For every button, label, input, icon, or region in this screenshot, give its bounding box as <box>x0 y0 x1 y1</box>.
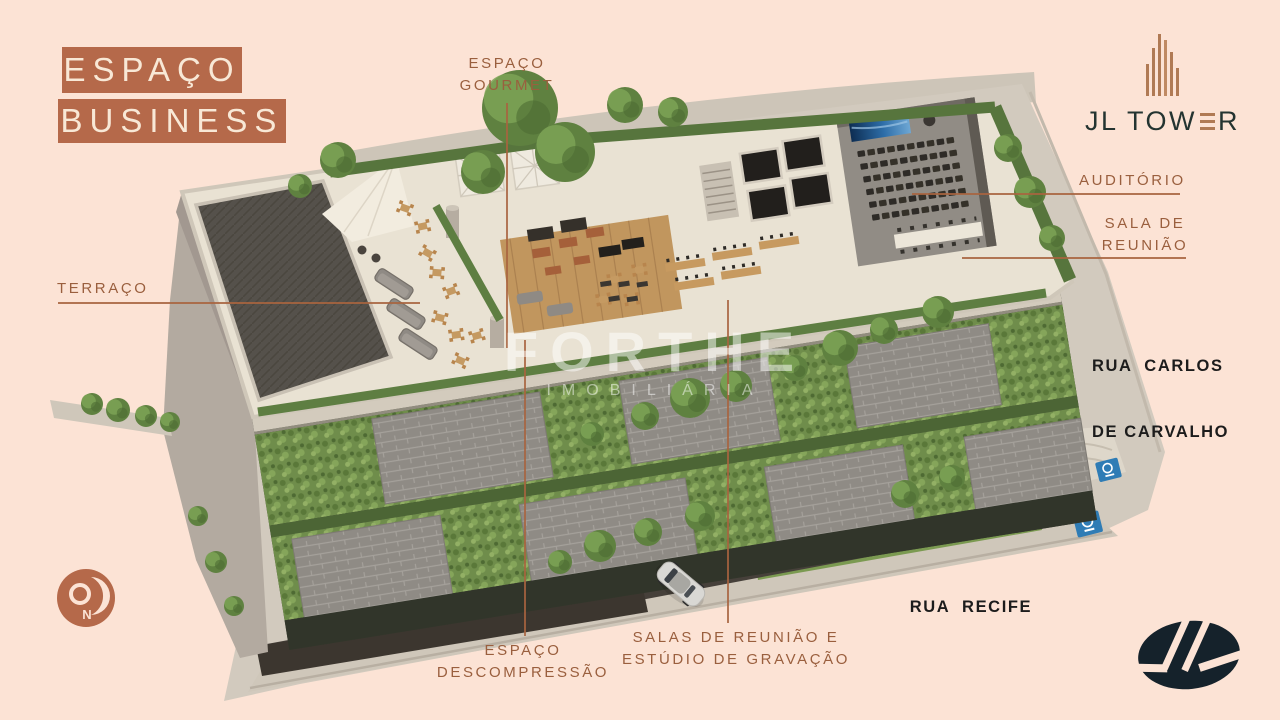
title-line-2: BUSINESS <box>61 102 284 140</box>
label-espaco-descompressao: ESPAÇO DESCOMPRESSÃO <box>432 640 614 684</box>
compass-north-letter: N <box>82 607 91 622</box>
brand-name: JL TOWR <box>1085 106 1240 137</box>
title-box-espaco: ESPAÇO <box>62 47 242 93</box>
jl-monogram-icon <box>1136 616 1242 694</box>
title-line-1: ESPAÇO <box>63 51 240 89</box>
title-box-business: BUSINESS <box>58 99 286 143</box>
brand-name-suffix: R <box>1218 106 1240 137</box>
watermark-brand: FORTHE <box>495 324 815 380</box>
tower-bars-icon <box>1146 32 1179 96</box>
label-auditorio: AUDITÓRIO <box>1079 170 1186 192</box>
watermark: FORTHE IMOBILIÁRIA <box>495 324 815 400</box>
jl-tower-logo: JL TOWR <box>1085 32 1240 137</box>
marketing-image: FORTHE IMOBILIÁRIA ESPAÇO BUSINESS JL TO… <box>0 0 1280 720</box>
brand-name-prefix: JL TOW <box>1085 106 1197 137</box>
label-salas-estudio: SALAS DE REUNIÃO E ESTÚDIO DE GRAVAÇÃO <box>612 627 860 671</box>
label-espaco-gourmet: ESPAÇO GOURMET <box>420 53 594 97</box>
brand-letter-e-icon <box>1200 113 1215 131</box>
studio-room <box>747 185 789 220</box>
street-name-rua-recife: RUA RECIFE <box>885 574 1032 640</box>
studio-room <box>790 173 832 208</box>
studio-room <box>740 148 782 183</box>
studio-room <box>782 136 824 171</box>
north-compass-icon: N <box>56 568 116 628</box>
label-sala-reuniao: SALA DE REUNIÃO <box>1095 213 1195 257</box>
watermark-subtitle: IMOBILIÁRIA <box>495 382 815 400</box>
label-terraco: TERRAÇO <box>57 278 149 300</box>
street-name-rua-carlos: RUA CARLOS DE CARVALHO <box>1092 311 1229 487</box>
